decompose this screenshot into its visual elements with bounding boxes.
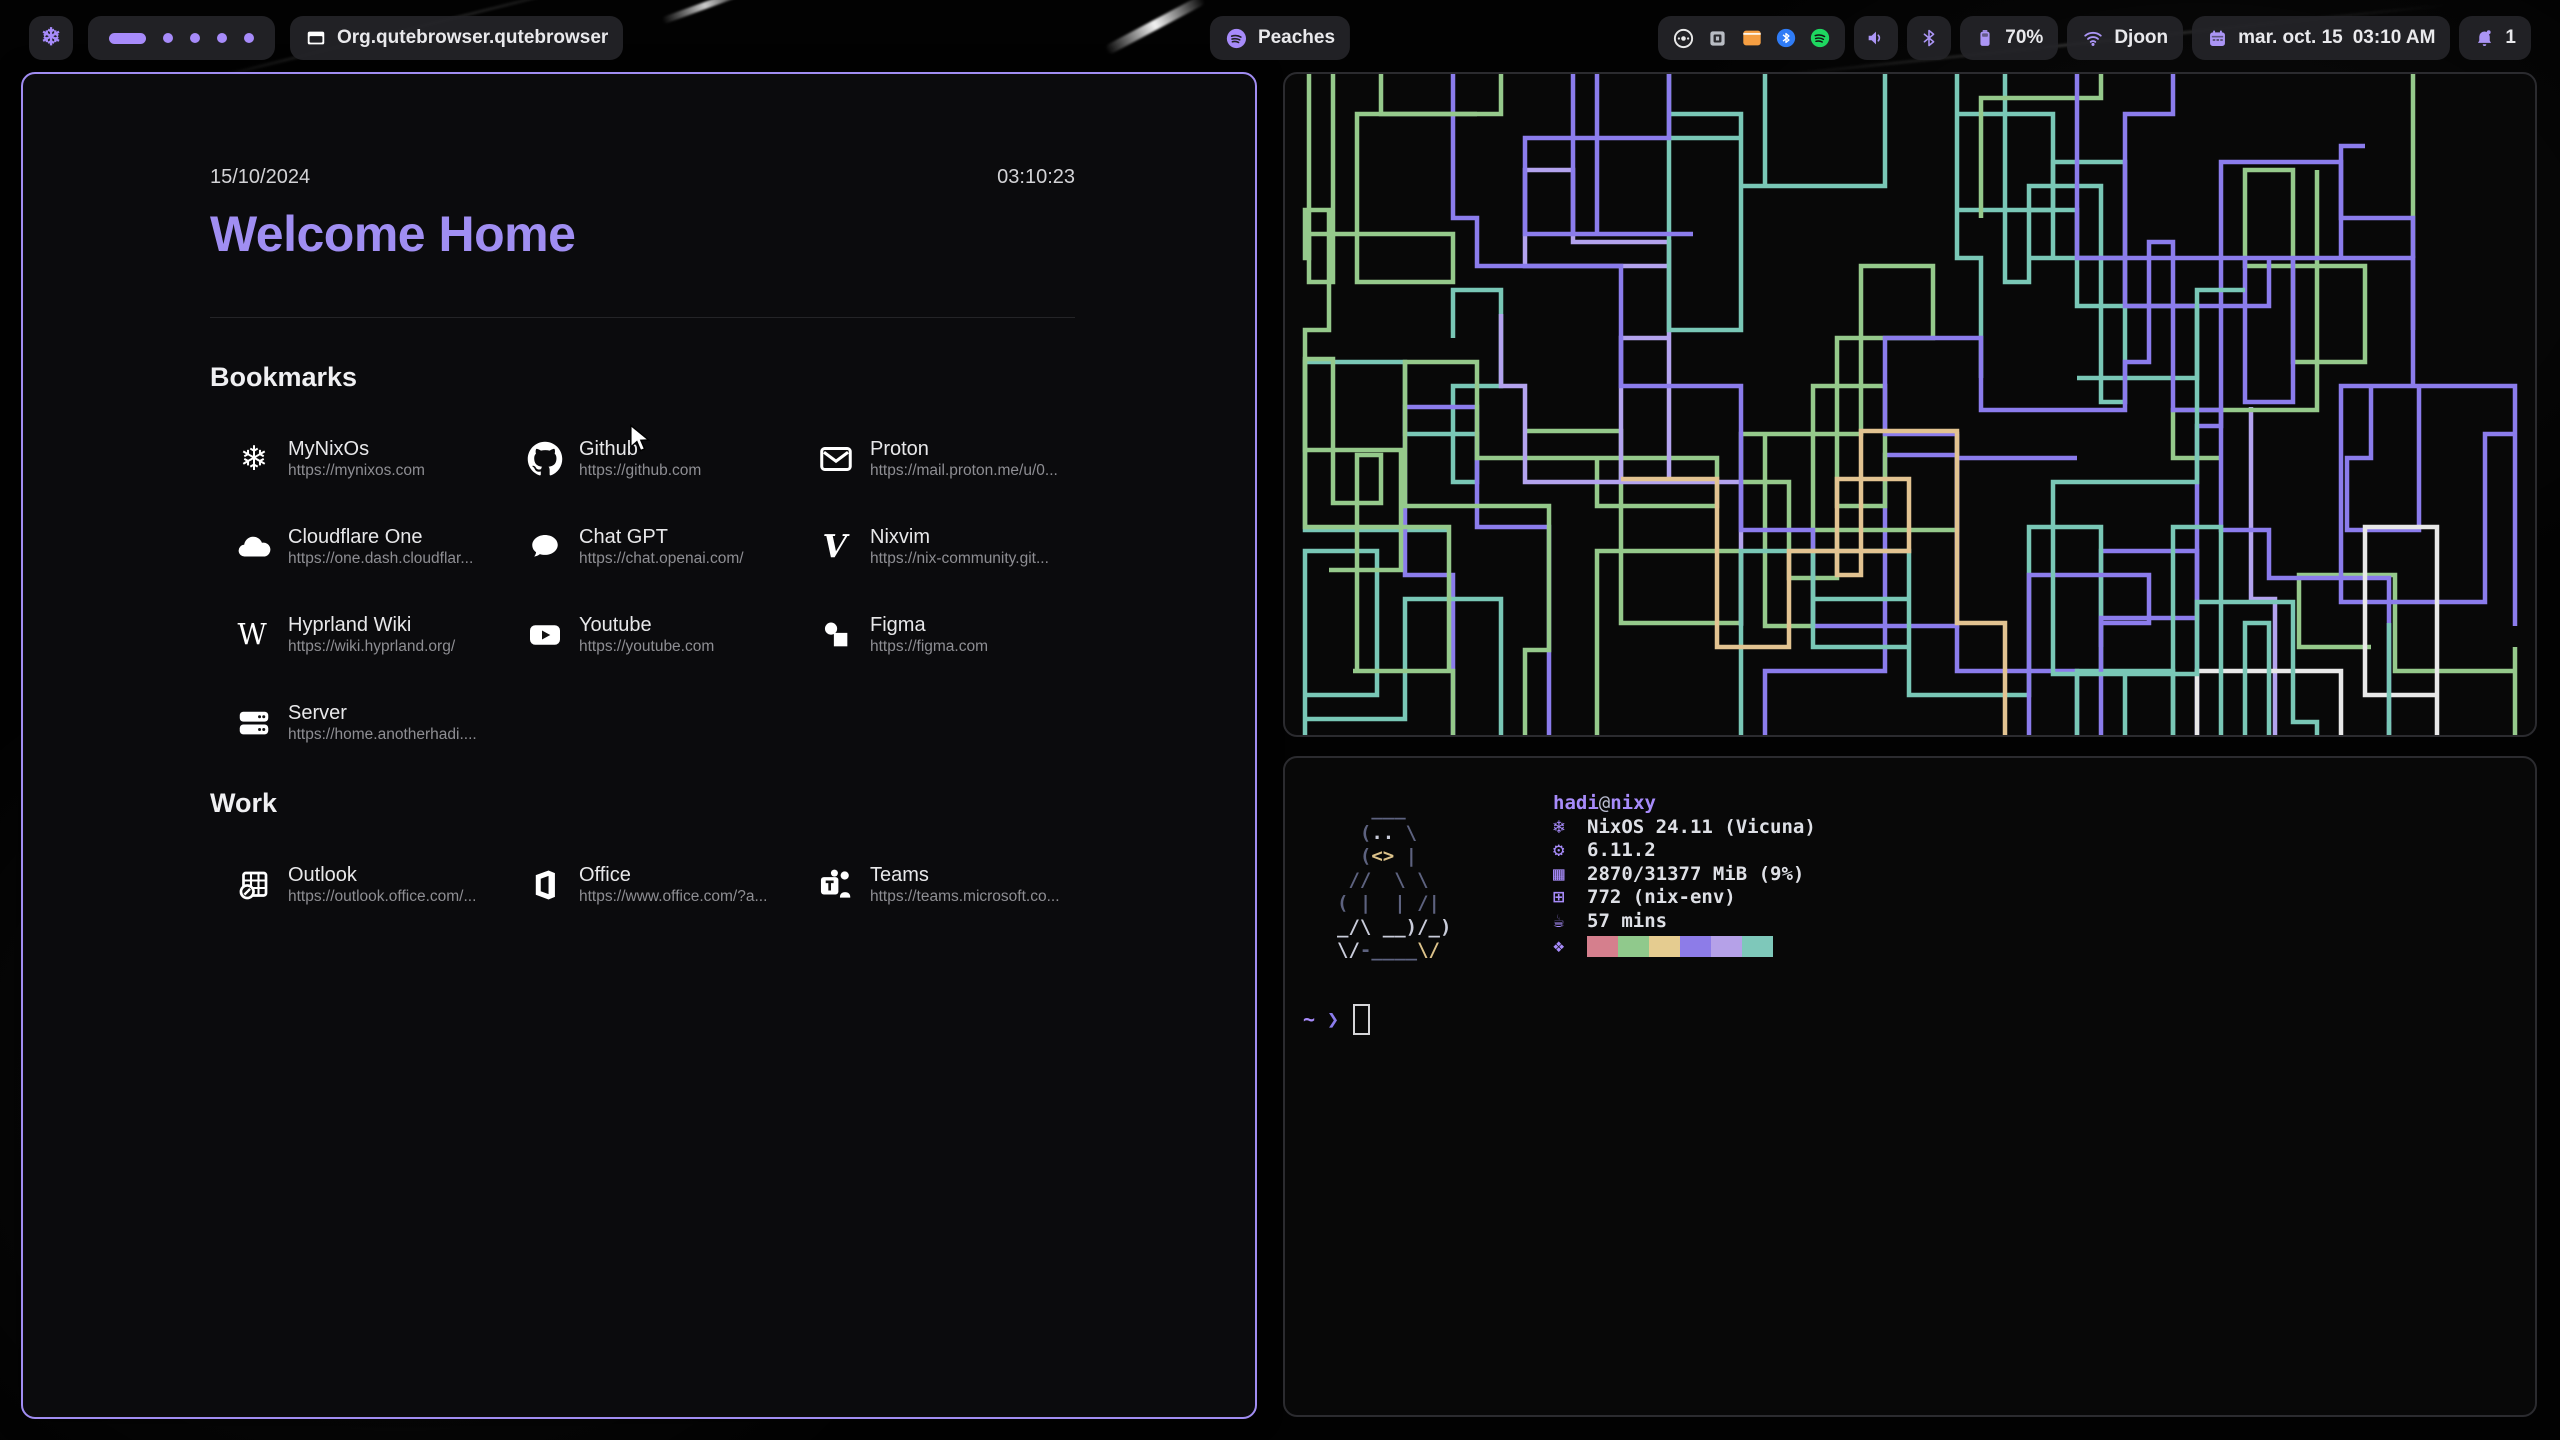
time-label: 03:10 AM — [2353, 27, 2436, 49]
bookmark-item[interactable]: Github https://github.com — [525, 437, 816, 480]
ascii-logo: ___ (.. \ (<> | // \ \ ( | | /| _/\ __)/… — [1303, 798, 1553, 963]
pipes-art — [1285, 74, 2535, 735]
bookmark-item[interactable]: Figma https://figma.com — [816, 613, 1107, 656]
github-icon — [525, 439, 565, 479]
page-title: Welcome Home — [210, 205, 1075, 263]
spotify-icon — [1225, 27, 1248, 50]
bookmark-name: Server — [288, 702, 347, 724]
bookmark-sections: Bookmarks❄ MyNixOs https://mynixos.com G… — [210, 362, 1075, 906]
fastfetch-value: 57 mins — [1587, 910, 1667, 934]
server-icon — [234, 703, 274, 743]
fastfetch-value: 6.11.2 — [1587, 839, 1656, 863]
bookmark-item[interactable]: W Hyprland Wiki https://wiki.hyprland.or… — [234, 613, 525, 656]
bookmark-url: https://mail.proton.me/u/0... — [870, 462, 1058, 479]
vim-icon: V — [816, 527, 856, 567]
bookmark-item[interactable]: Chat GPT https://chat.openai.com/ — [525, 525, 816, 568]
uptime-icon: ☕ — [1553, 910, 1587, 934]
battery-icon — [1975, 27, 1995, 49]
palette-swatch — [1680, 936, 1711, 957]
qutebrowser-window: 15/10/2024 03:10:23 Welcome Home Bookmar… — [21, 72, 1257, 1419]
date-label: mar. oct. 15 — [2238, 27, 2343, 49]
bookmark-name: Chat GPT — [579, 526, 668, 548]
username: hadi — [1553, 792, 1599, 814]
palette-icon: ❖ — [1553, 935, 1587, 959]
bookmark-name: Github — [579, 438, 638, 460]
bookmark-grid: Outlook https://outlook.office.com/... O… — [234, 863, 1075, 906]
workspace-dot[interactable] — [163, 33, 173, 43]
bookmark-item[interactable]: ❄ MyNixOs https://mynixos.com — [234, 437, 525, 480]
bookmark-item[interactable]: Outlook https://outlook.office.com/... — [234, 863, 525, 906]
fastfetch-value: NixOS 24.11 (Vicuna) — [1587, 816, 1816, 840]
notification-count-label: 1 — [2505, 27, 2516, 49]
bookmark-item[interactable]: Cloudflare One https://one.dash.cloudfla… — [234, 525, 525, 568]
fastfetch-output: ___ (.. \ (<> | // \ \ ( | | /| _/\ __)/… — [1303, 792, 2515, 963]
snowflake-icon: ❄ — [234, 439, 274, 479]
terminal-cursor — [1353, 1004, 1370, 1035]
terminal-palette-row: ❖ — [1553, 935, 1816, 959]
palette-swatch — [1649, 936, 1680, 957]
media-title-label: Peaches — [1258, 27, 1335, 49]
bookmark-name: Cloudflare One — [288, 526, 423, 548]
battery-indicator[interactable]: 70% — [1960, 16, 2058, 60]
notifications-pill[interactable]: 1 — [2459, 16, 2531, 60]
bookmark-url: https://youtube.com — [579, 638, 714, 655]
system-tray[interactable] — [1658, 16, 1845, 60]
bookmark-url: https://github.com — [579, 462, 701, 479]
bluetooth-icon — [1919, 28, 1939, 48]
workspace-dot[interactable] — [217, 33, 227, 43]
chat-icon — [525, 527, 565, 567]
bookmark-url: https://nix-community.git... — [870, 550, 1049, 567]
workspace-indicator[interactable] — [88, 16, 275, 60]
bookmark-url: https://outlook.office.com/... — [288, 888, 476, 905]
bookmark-url: https://teams.microsoft.co... — [870, 888, 1060, 905]
bookmark-name: Figma — [870, 614, 926, 636]
bookmark-url: https://www.office.com/?a... — [579, 888, 767, 905]
palette-swatch — [1587, 936, 1618, 957]
prompt-symbol-icon: ❯ — [1327, 1007, 1339, 1031]
wifi-ssid-label: Djoon — [2114, 27, 2168, 49]
fastfetch-value: 772 (nix-env) — [1587, 886, 1736, 910]
bookmark-name: Office — [579, 864, 631, 886]
desktop: ❄ Org.qutebrowser.qutebrowser Peaches — [0, 0, 2560, 1440]
terminal-palette — [1587, 936, 1773, 957]
battery-percent-label: 70% — [2005, 27, 2043, 49]
figma-icon — [816, 615, 856, 655]
bookmark-item[interactable]: Teams https://teams.microsoft.co... — [816, 863, 1107, 906]
divider — [210, 317, 1075, 318]
bookmark-item[interactable]: V Nixvim https://nix-community.git... — [816, 525, 1107, 568]
fastfetch-row: ⊞772 (nix-env) — [1553, 886, 1816, 910]
fastfetch-value: 2870/31377 MiB (9%) — [1587, 863, 1804, 887]
bookmark-item[interactable]: Youtube https://youtube.com — [525, 613, 816, 656]
window-title-label: Org.qutebrowser.qutebrowser — [337, 27, 608, 49]
svg-text:W: W — [238, 618, 268, 651]
youtube-icon — [525, 615, 565, 655]
bell-icon — [2474, 28, 2495, 49]
startpage-date: 15/10/2024 — [210, 166, 310, 189]
palette-swatch — [1618, 936, 1649, 957]
bookmark-url: https://figma.com — [870, 638, 988, 655]
nixos-launcher-button[interactable]: ❄ — [29, 16, 73, 60]
svg-text:V: V — [823, 529, 851, 565]
workspace-dot[interactable] — [190, 33, 200, 43]
palette-swatch — [1742, 936, 1773, 957]
startpage-clock: 03:10:23 — [997, 166, 1075, 189]
clock-pill[interactable]: mar. oct. 15 03:10 AM — [2192, 16, 2450, 60]
distro-icon: ❄ — [1553, 816, 1587, 840]
office-icon — [525, 865, 565, 905]
shell-prompt: ~ ❯ — [1303, 1004, 2515, 1035]
bluetooth-icon[interactable] — [1774, 27, 1797, 50]
cloud-icon — [234, 527, 274, 567]
palette-swatch — [1711, 936, 1742, 957]
packages-icon: ⊞ — [1553, 886, 1587, 910]
fastfetch-row: ❄NixOS 24.11 (Vicuna) — [1553, 816, 1816, 840]
bookmark-url: https://chat.openai.com/ — [579, 550, 744, 567]
fastfetch-row: ☕57 mins — [1553, 910, 1816, 934]
calendar-icon — [2207, 28, 2228, 49]
bookmark-item[interactable]: Proton https://mail.proton.me/u/0... — [816, 437, 1107, 480]
keepass-icon[interactable] — [1706, 27, 1729, 50]
fastfetch-info: hadi@nixy ❄NixOS 24.11 (Vicuna)⚙6.11.2▦2… — [1553, 792, 1816, 963]
bookmark-name: Youtube — [579, 614, 652, 636]
startpage-header: 15/10/2024 03:10:23 — [210, 166, 1075, 189]
fastfetch-row: ⚙6.11.2 — [1553, 839, 1816, 863]
bluetooth-button[interactable] — [1907, 16, 1951, 60]
section-heading: Bookmarks — [210, 362, 1075, 393]
bookmark-url: https://home.anotherhadi.... — [288, 726, 477, 743]
bookmark-grid: ❄ MyNixOs https://mynixos.com Github htt… — [234, 437, 1075, 744]
spotify-icon[interactable] — [1808, 27, 1831, 50]
pipes-terminal-window[interactable] — [1283, 72, 2537, 737]
bookmark-name: Outlook — [288, 864, 357, 886]
bookmark-item[interactable]: Office https://www.office.com/?a... — [525, 863, 816, 906]
mail-icon — [816, 439, 856, 479]
wifi-icon — [2082, 27, 2104, 49]
prompt-directory: ~ — [1303, 1007, 1315, 1031]
workspace-active-pill[interactable] — [109, 33, 146, 44]
volume-button[interactable] — [1854, 16, 1898, 60]
bookmark-item[interactable]: Server https://home.anotherhadi.... — [234, 701, 525, 744]
media-player-pill[interactable]: Peaches — [1210, 16, 1350, 60]
bookmark-name: Teams — [870, 864, 929, 886]
bookmark-name: Nixvim — [870, 526, 930, 548]
outlook-icon — [234, 865, 274, 905]
active-window-title-pill[interactable]: Org.qutebrowser.qutebrowser — [290, 16, 623, 60]
hostname: nixy — [1610, 792, 1656, 814]
top-bar-right: 70% Djoon mar. oct. 15 03:10 AM 1 — [1658, 16, 2531, 60]
window-icon — [305, 27, 327, 49]
bookmark-name: MyNixOs — [288, 438, 369, 460]
memory-icon: ▦ — [1553, 863, 1587, 887]
user-host-line: hadi@nixy — [1553, 792, 1816, 816]
folder-icon[interactable] — [1740, 27, 1763, 50]
nixos-snowflake-icon: ❄ — [41, 26, 61, 50]
bookmark-name: Proton — [870, 438, 929, 460]
top-bar-left: ❄ Org.qutebrowser.qutebrowser — [29, 16, 623, 60]
wikipedia-icon: W — [234, 615, 274, 655]
top-bar: ❄ Org.qutebrowser.qutebrowser Peaches — [0, 16, 2560, 60]
bookmark-url: https://one.dash.cloudflar... — [288, 550, 473, 567]
section-heading: Work — [210, 788, 1075, 819]
kernel-icon: ⚙ — [1553, 839, 1587, 863]
bookmark-name: Hyprland Wiki — [288, 614, 411, 636]
network-indicator[interactable]: Djoon — [2067, 16, 2183, 60]
teams-icon — [816, 865, 856, 905]
bookmark-url: https://mynixos.com — [288, 462, 425, 479]
fastfetch-terminal-window[interactable]: ___ (.. \ (<> | // \ \ ( | | /| _/\ __)/… — [1283, 756, 2537, 1417]
bookmark-url: https://wiki.hyprland.org/ — [288, 638, 455, 655]
fastfetch-rows: ❄NixOS 24.11 (Vicuna)⚙6.11.2▦2870/31377 … — [1553, 816, 1816, 934]
record-icon[interactable] — [1672, 27, 1695, 50]
speaker-icon — [1865, 27, 1887, 49]
workspace-dot[interactable] — [244, 33, 254, 43]
fastfetch-row: ▦2870/31377 MiB (9%) — [1553, 863, 1816, 887]
